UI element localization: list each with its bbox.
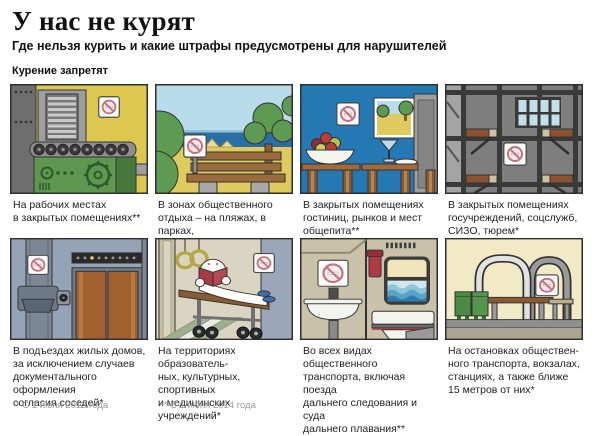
section-label: Курение запретят (12, 65, 592, 77)
panel-caption: В зонах общественного отдыха – на пляжах… (158, 199, 291, 238)
illustration-park-beach (155, 84, 293, 194)
infographic-page: У нас не курят Где нельзя курить и какие… (0, 0, 604, 419)
panel-caption: В закрытых помещениях гостиниц, рынков и… (303, 199, 436, 238)
panel-hotels-markets-catering: В закрытых помещениях гостиниц, рынков и… (300, 84, 438, 238)
panel-public-transport: Во всех видах общественного транспорта, … (300, 238, 438, 398)
wall-picture (374, 98, 414, 138)
panel-caption: На территориях образователь- ных, культу… (158, 345, 291, 398)
dispenser (367, 250, 383, 277)
panel-caption: На рабочих местах в закрытых помещениях*… (13, 199, 146, 238)
illustration-gurney-patient (155, 238, 293, 340)
illustration-elevator-hall (10, 238, 148, 340)
panel-caption: В подъездах жилых домов, за исключением … (13, 345, 146, 398)
panel-recreation-zones: В зонах общественного отдыха – на пляжах… (155, 84, 293, 238)
panel-caption: На остановках обществен- ного транспорта… (448, 345, 581, 398)
page-title: У нас не курят (12, 6, 592, 36)
no-smoking-icon (254, 254, 275, 273)
header: У нас не курят Где нельзя курить и какие… (0, 0, 604, 53)
trash-bins (455, 292, 488, 320)
page-subtitle: Где нельзя курить и какие штрафы предусм… (12, 39, 592, 53)
panels-grid: На рабочих местах в закрытых помещениях*… (10, 84, 604, 398)
panel-workplace: На рабочих местах в закрытых помещениях*… (10, 84, 148, 238)
call-button (57, 291, 70, 305)
illustration-cafe (300, 84, 438, 194)
footnote-2014: ** С 1 июня 2014 года (160, 400, 256, 411)
illustration-train-washroom (300, 238, 438, 340)
no-smoking-icon (28, 255, 49, 274)
illustration-workplace (10, 84, 148, 194)
panel-transport-stops: На остановках обществен- ного транспорта… (445, 238, 583, 398)
no-smoking-icon (184, 135, 206, 157)
illustration-prison-cell (445, 84, 583, 194)
panel-caption: Во всех видах общественного транспорта, … (303, 345, 436, 398)
elevator-doors (72, 268, 142, 340)
panel-caption: В закрытых помещениях госучреждений, соц… (448, 199, 581, 238)
train-window (384, 257, 430, 305)
floor-indicator (72, 253, 142, 263)
panel-state-institutions: В закрытых помещениях госучреждений, соц… (445, 84, 583, 238)
no-smoking-icon (318, 260, 348, 286)
no-smoking-icon (536, 275, 558, 296)
panel-edu-culture-sport-med: На территориях образователь- ных, культу… (155, 238, 293, 398)
barred-window (515, 97, 561, 128)
no-smoking-icon (504, 143, 526, 165)
footnote-2013: * С 1 июня 2013 года (16, 400, 160, 411)
panel-residential-entrances: В подъездах жилых домов, за исключением … (10, 238, 148, 398)
no-smoking-icon (99, 97, 120, 118)
no-smoking-icon (337, 103, 359, 125)
illustration-bus-stop (445, 238, 583, 340)
